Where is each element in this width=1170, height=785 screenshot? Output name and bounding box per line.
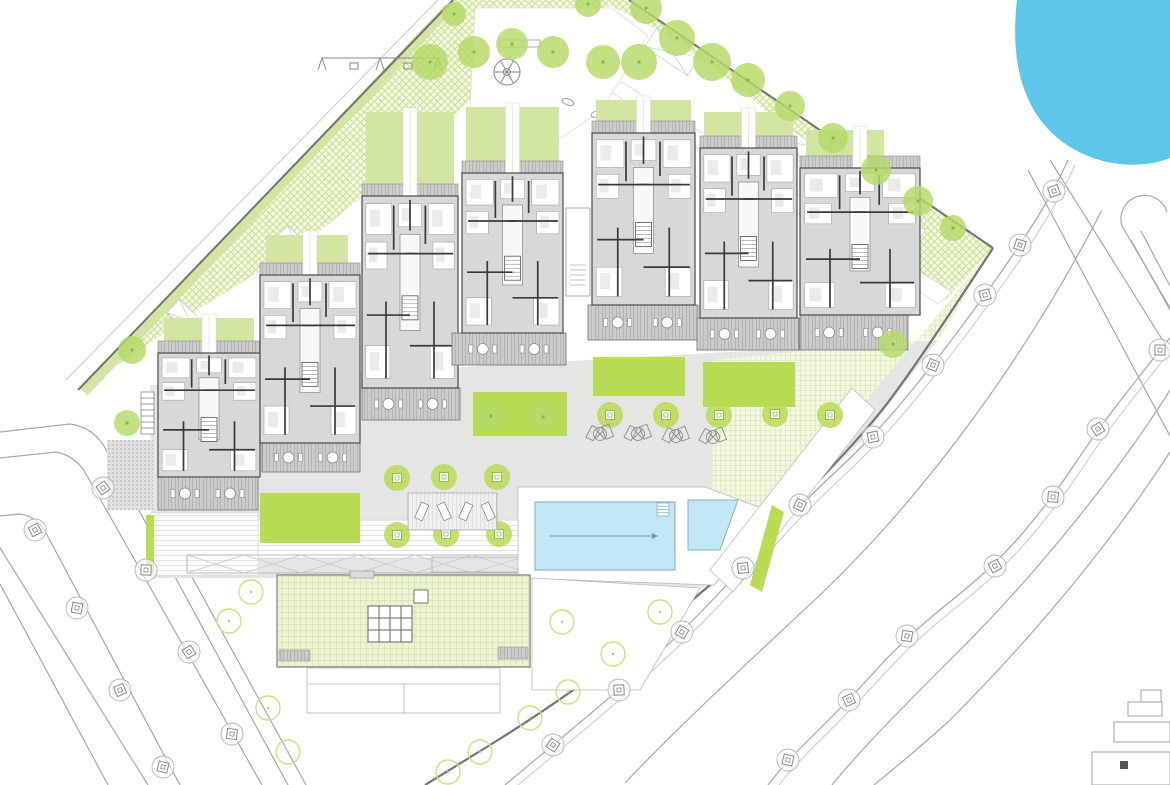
terrace-table: [427, 399, 438, 410]
canopy-tree: [442, 2, 466, 26]
street-tree: [789, 494, 811, 516]
furniture: [432, 210, 442, 227]
canopy-tree: [775, 91, 805, 121]
terrace-chair: [756, 330, 760, 338]
street-tree: [152, 756, 174, 778]
tree-trunk: [452, 12, 455, 15]
tree-trunk: [788, 104, 791, 107]
swing-seat: [350, 63, 358, 69]
terrace-table: [283, 452, 294, 463]
canopy-tree: [903, 186, 933, 216]
furniture: [234, 454, 244, 466]
roof-access-tab: [350, 571, 374, 578]
tree-center-dot: [479, 751, 481, 753]
proposed-tree: [276, 740, 300, 764]
canopy-tree: [496, 28, 528, 60]
tree-pit: [782, 754, 794, 766]
block-connector: [566, 208, 590, 296]
terrace-chair: [520, 345, 524, 353]
street-tree: [922, 354, 944, 376]
terrace-chair: [677, 319, 681, 327]
furniture: [537, 303, 547, 318]
detail-fragment-box: [1128, 702, 1162, 716]
street-tree: [862, 426, 884, 448]
detail-fragment-box: [1141, 690, 1161, 702]
tree-trunk: [472, 50, 475, 53]
canopy-tree: [118, 336, 146, 364]
connector-outline: [566, 208, 590, 296]
canopy-tree: [586, 45, 620, 79]
water-body: [1015, 0, 1170, 165]
plaza-tree: [653, 402, 679, 428]
tree-trunk: [874, 168, 877, 171]
tree-trunk: [637, 60, 640, 63]
furniture: [166, 454, 176, 466]
canopy-tree: [621, 44, 657, 80]
furniture: [369, 247, 377, 262]
tree-trunk: [746, 78, 749, 81]
canopy-tree: [114, 410, 140, 436]
furniture: [540, 216, 549, 228]
street-tree: [777, 749, 799, 771]
canopy-tree: [731, 63, 765, 97]
proposed-tree: [217, 609, 241, 633]
tree-center-dot: [561, 621, 563, 623]
planting-bed: [703, 362, 795, 407]
tree-center-dot: [612, 653, 614, 655]
street-tree: [92, 477, 114, 499]
lower-terrace: [307, 668, 500, 713]
tree-center-dot: [287, 751, 289, 753]
furniture: [600, 179, 609, 192]
terrace-table: [383, 399, 394, 410]
terrace-chair: [298, 454, 302, 462]
furniture: [707, 194, 716, 207]
tree-center-dot: [659, 611, 661, 613]
tree-pit: [737, 562, 748, 573]
tree-grate: [771, 410, 780, 419]
tree-trunk: [586, 2, 589, 5]
furniture: [233, 362, 244, 373]
street-tree: [109, 679, 131, 701]
furniture: [809, 207, 820, 218]
tree-trunk: [951, 226, 954, 229]
tree-pit: [979, 289, 991, 301]
furniture: [672, 179, 681, 192]
roof-vent-strip: [498, 647, 528, 659]
street-tree: [1087, 418, 1109, 440]
tree-pit: [1048, 492, 1059, 503]
terrace-chair: [493, 345, 497, 353]
tree-trunk: [551, 50, 554, 53]
tree-center-dot: [567, 691, 569, 693]
furniture: [469, 216, 478, 228]
furniture: [810, 179, 823, 192]
tree-pit: [614, 685, 625, 696]
proposed-tree: [518, 706, 542, 730]
amphitheater-steps: [150, 513, 258, 575]
terrace-table: [824, 327, 835, 338]
canopy-tree: [537, 36, 569, 68]
apartment-building-5: [588, 96, 698, 340]
planting-bed: [260, 493, 360, 543]
apartment-building-4: [452, 103, 566, 365]
plaza-tree: [817, 402, 843, 428]
tree-grate: [662, 411, 671, 420]
canopy-tree: [693, 43, 731, 81]
terrace-chair: [374, 400, 378, 408]
apartment-building-7: [800, 126, 920, 350]
plaza-tree: [706, 402, 732, 428]
furniture: [268, 412, 278, 428]
apartment-building-1: [158, 314, 260, 510]
terrace-chair: [711, 330, 715, 338]
tree-grate: [393, 474, 402, 483]
tree-pit: [901, 630, 912, 641]
street-tree: [732, 557, 754, 579]
street-tree: [178, 641, 200, 663]
terrace-chair: [419, 400, 423, 408]
site-plan: [0, 0, 1170, 785]
street-tree: [24, 519, 46, 541]
terrace-table: [765, 329, 776, 340]
tree-grate: [440, 473, 449, 482]
terrace-chair: [171, 490, 175, 498]
terrace-chair: [195, 490, 199, 498]
furniture: [600, 145, 611, 160]
furniture: [708, 160, 718, 175]
furniture: [600, 273, 610, 289]
furniture: [335, 412, 345, 428]
tree-pit: [227, 729, 238, 740]
street-tree: [1009, 234, 1031, 256]
tree-grate: [493, 473, 502, 482]
furniture: [434, 352, 444, 370]
road-line: [0, 584, 108, 785]
tree-pit: [157, 761, 169, 773]
tree-center-dot: [447, 771, 449, 773]
planting-bed: [593, 357, 685, 396]
plaza-tree: [484, 464, 510, 490]
apartment-building-6: [697, 108, 799, 350]
tree-grate: [715, 411, 724, 420]
street-tree: [1042, 486, 1064, 508]
roof-vent-strip: [279, 650, 310, 661]
plaza-tree: [384, 522, 410, 548]
proposed-tree: [436, 760, 460, 784]
furniture: [436, 247, 444, 262]
tree-trunk: [644, 6, 647, 9]
tree-trunk: [601, 60, 604, 63]
terrace-chair: [319, 454, 323, 462]
furniture: [890, 288, 902, 302]
terrace-table: [529, 344, 540, 355]
terrace-chair: [735, 330, 739, 338]
plaza-tree: [762, 401, 788, 427]
furniture: [370, 210, 380, 227]
canopy-tree: [861, 155, 891, 185]
terrace-chair: [216, 490, 220, 498]
water-layer: [1015, 0, 1170, 165]
tree-trunk: [675, 36, 678, 39]
furniture: [333, 287, 344, 302]
tree-trunk: [541, 415, 544, 418]
canopy-tree: [659, 20, 695, 56]
furniture: [888, 179, 901, 192]
site-plan-drawing: [0, 0, 1170, 785]
furniture: [470, 303, 480, 318]
proposed-tree: [239, 580, 263, 604]
paved-court: [107, 440, 153, 510]
west-stair: [141, 392, 154, 434]
terrace-table: [180, 488, 191, 499]
tree-grate: [826, 411, 835, 420]
terrace-table: [477, 344, 488, 355]
tree-center-dot: [250, 591, 252, 593]
detail-fragment-box: [1114, 722, 1170, 742]
terrace-chair: [274, 454, 278, 462]
road-line: [0, 548, 148, 785]
street-tree: [974, 284, 996, 306]
terrace-outline: [307, 668, 500, 713]
tree-trunk: [130, 348, 133, 351]
roof-skylight: [368, 606, 412, 642]
furniture: [775, 194, 784, 207]
swing-leg: [318, 58, 326, 70]
street-tree: [608, 679, 630, 701]
street-tree: [66, 597, 88, 619]
street-tree: [1043, 180, 1065, 202]
street-tree: [671, 621, 693, 643]
proposed-tree: [468, 740, 492, 764]
terrace-chair: [443, 400, 447, 408]
tree-pit: [141, 565, 151, 575]
furniture: [773, 286, 783, 302]
furniture: [893, 207, 904, 218]
street-tree: [1149, 339, 1170, 361]
plaza-tree: [384, 465, 410, 491]
road-line: [1028, 170, 1170, 436]
canopy-tree: [818, 123, 848, 153]
tree-trunk: [510, 42, 513, 45]
street-tree: [542, 734, 564, 756]
tree-center-dot: [228, 620, 230, 622]
canopy-tree: [458, 36, 490, 68]
furniture: [809, 288, 821, 302]
annotations-layer: [1092, 690, 1170, 785]
canopy-tree: [879, 330, 907, 358]
canopy-tree: [475, 400, 507, 432]
terrace-table: [719, 329, 730, 340]
terrace-table: [327, 452, 338, 463]
apartment-building-2: [260, 231, 360, 472]
furniture: [667, 145, 678, 160]
terrace-chair: [343, 454, 347, 462]
tree-trunk: [710, 60, 713, 63]
terrace-chair: [469, 345, 473, 353]
terrace-chair: [398, 400, 402, 408]
tree-grate: [495, 530, 504, 539]
terrace-chair: [780, 330, 784, 338]
detail-fragment-box: [1092, 752, 1170, 785]
terrace-chair: [815, 329, 819, 337]
terrace-table: [225, 488, 236, 499]
furniture: [708, 286, 718, 302]
terrace-chair: [604, 319, 608, 327]
terrace-chair: [628, 319, 632, 327]
tree-grate: [442, 530, 451, 539]
tree-grate: [606, 411, 615, 420]
furniture: [337, 320, 346, 333]
tree-trunk: [428, 60, 431, 63]
furniture: [166, 362, 177, 373]
terrace-table: [612, 317, 623, 328]
roof-hatch-box: [414, 590, 428, 603]
median-island: [1121, 195, 1167, 226]
terrace-chair: [544, 345, 548, 353]
tree-pit: [71, 602, 83, 614]
street-tree: [838, 689, 860, 711]
canopy-tree: [412, 44, 448, 80]
street-tree: [221, 723, 243, 745]
tree-trunk: [125, 421, 128, 424]
apartment-building-3: [362, 108, 460, 420]
tree-pit: [1155, 345, 1165, 355]
plaza-tree: [431, 464, 457, 490]
terrace-chair: [653, 319, 657, 327]
tree-trunk: [916, 199, 919, 202]
terrace-table: [662, 317, 673, 328]
tree-grate: [393, 531, 402, 540]
detail-fragment-core: [1120, 761, 1128, 769]
canopy-tree: [940, 215, 966, 241]
furniture: [369, 352, 379, 370]
tree-trunk: [831, 136, 834, 139]
furniture: [771, 160, 781, 175]
terrace-chair: [240, 490, 244, 498]
tree-trunk: [891, 342, 894, 345]
street-tree: [135, 559, 157, 581]
street-tree: [984, 555, 1006, 577]
furniture: [669, 273, 679, 289]
terrace-chair: [839, 329, 843, 337]
tree-trunk: [489, 414, 492, 417]
furniture: [268, 287, 279, 302]
plaza-tree: [597, 402, 623, 428]
furniture: [536, 185, 547, 199]
tree-center-dot: [267, 707, 269, 709]
median-island: [1141, 231, 1170, 286]
tree-center-dot: [529, 717, 531, 719]
furniture: [470, 185, 481, 199]
furniture: [267, 320, 276, 333]
canopy-tree: [527, 401, 559, 433]
street-tree: [896, 625, 918, 647]
terrace-chair: [864, 329, 868, 337]
tree-pit: [867, 431, 879, 443]
pool-steps: [657, 503, 669, 516]
